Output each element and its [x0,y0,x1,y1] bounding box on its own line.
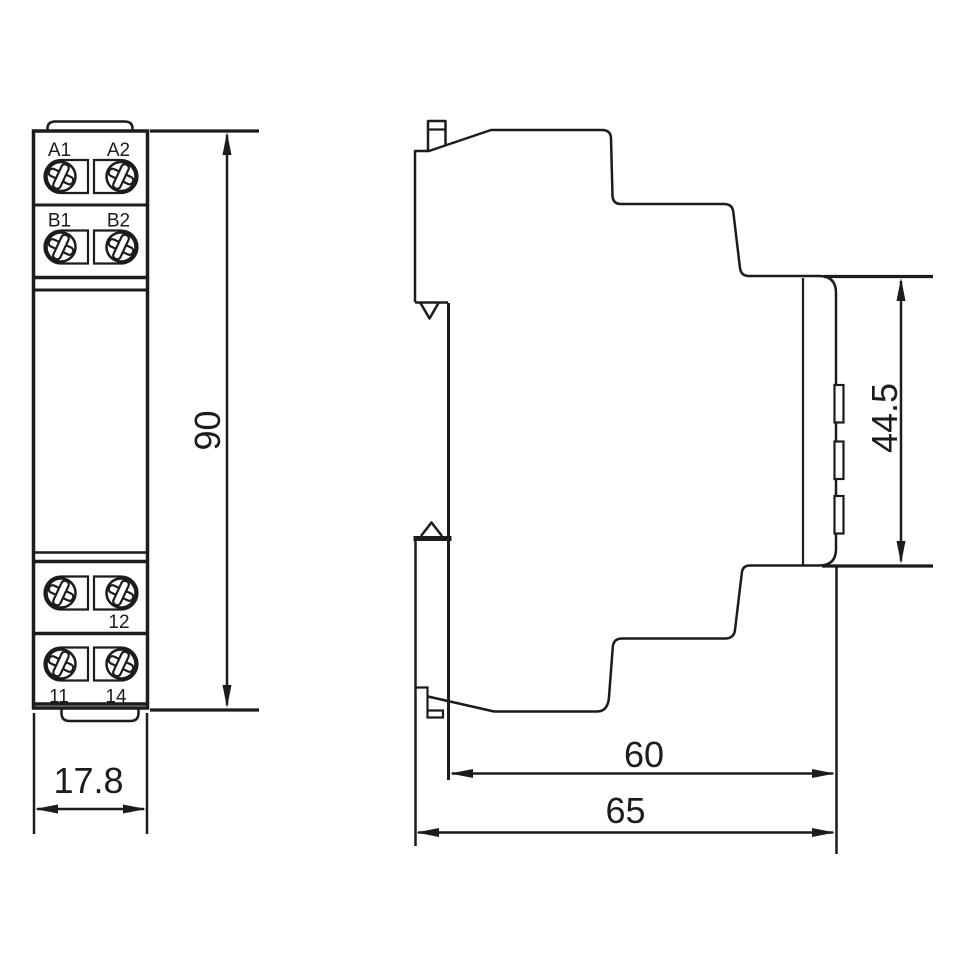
din-clip-tooth-lower [421,523,442,537]
terminal-label-a1: A1 [48,140,71,161]
dimension-panel-44.5: 44.5 [822,277,933,855]
side-view: 44.5 60 65 [414,121,934,854]
terminal-label-a2: A2 [107,140,130,161]
dimension-depth-60: 60 [450,734,835,778]
terminal-row-b [44,230,139,265]
dimension-total-65: 65 [416,790,835,837]
terminal-row-11-14 [44,647,139,682]
terminal-label-12: 12 [108,612,129,633]
dimension-height-90: 90 [150,131,259,710]
dim-height-value: 90 [187,410,228,450]
terminal-row-12 [44,576,139,611]
dim-width-value: 17.8 [53,760,123,801]
terminal-row-a [44,159,139,194]
front-view: A1 A2 B1 B2 12 11 14 90 17.8 [34,122,260,835]
technical-drawing: A1 A2 B1 B2 12 11 14 90 17.8 [0,0,959,959]
bezel-tab-2 [835,442,844,480]
terminal-label-14: 14 [105,687,127,708]
terminal-label-b1: B1 [48,211,71,232]
terminal-label-11: 11 [49,687,69,708]
terminal-label-b2: B2 [107,211,130,232]
drawing-canvas: A1 A2 B1 B2 12 11 14 90 17.8 [0,0,959,959]
dim-depth-body-value: 60 [624,734,664,775]
din-clip-foot [416,688,444,718]
bezel-tab-1 [835,385,844,423]
din-channel-tooth-upper [421,303,439,319]
bezel-tab-3 [835,496,844,534]
dim-panel-value: 44.5 [864,383,905,453]
dim-depth-total-value: 65 [605,790,645,831]
front-bottom-tab [62,709,139,721]
dimension-width-17.8: 17.8 [34,713,147,834]
side-body-outline [415,130,836,712]
